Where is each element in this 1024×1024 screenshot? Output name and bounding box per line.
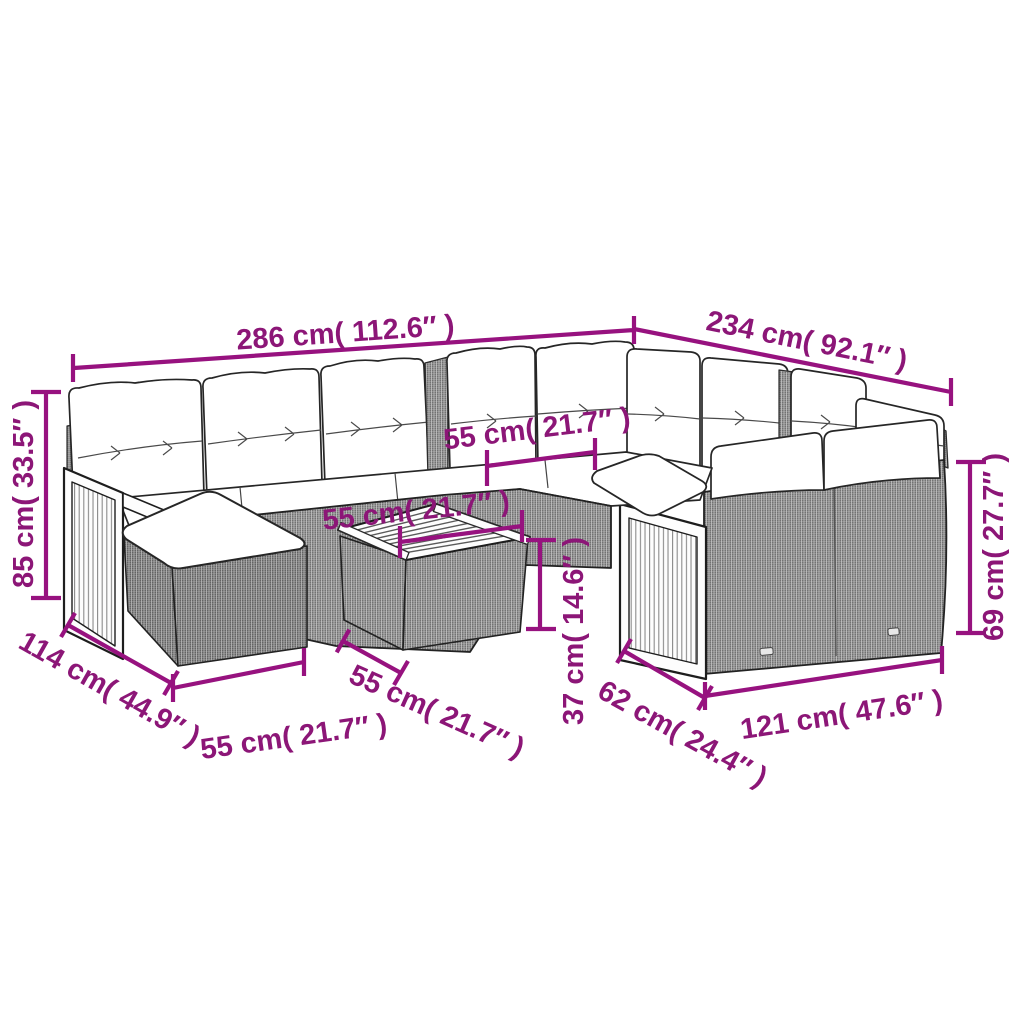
svg-text:85 cm( 33.5″ ): 85 cm( 33.5″ ) — [8, 400, 40, 588]
svg-text:69 cm( 27.7″ ): 69 cm( 27.7″ ) — [978, 453, 1010, 641]
svg-text:37 cm( 14.6″ ): 37 cm( 14.6″ ) — [558, 537, 590, 725]
